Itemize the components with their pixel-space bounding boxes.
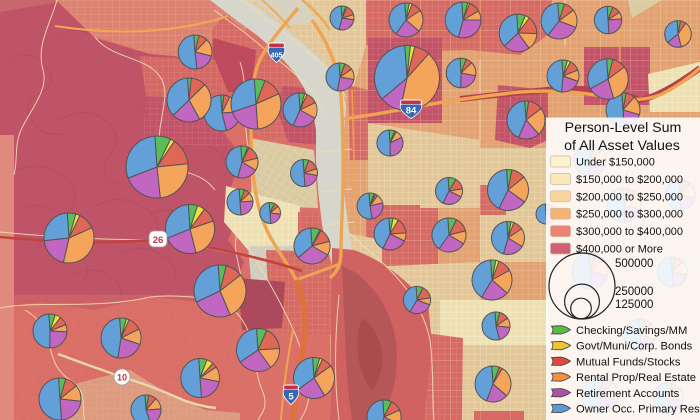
svg-text:Govt/Muni/Corp. Bonds: Govt/Muni/Corp. Bonds	[576, 341, 693, 353]
svg-text:Mutual Funds/Stocks: Mutual Funds/Stocks	[576, 356, 681, 368]
svg-text:Retirement Accounts: Retirement Accounts	[576, 388, 680, 400]
svg-text:Under $150,000: Under $150,000	[576, 157, 655, 169]
svg-text:of All Asset Values: of All Asset Values	[564, 138, 680, 154]
svg-text:Checking/Savings/MM: Checking/Savings/MM	[576, 325, 687, 337]
svg-text:$200,000 to $250,000: $200,000 to $250,000	[576, 191, 683, 203]
svg-text:$250,000 to $300,000: $250,000 to $300,000	[576, 209, 683, 221]
svg-text:$150,000 to $200,000: $150,000 to $200,000	[576, 174, 683, 186]
svg-text:Person-Level Sum: Person-Level Sum	[565, 120, 682, 136]
svg-text:$300,000 to $400,000: $300,000 to $400,000	[576, 226, 683, 238]
svg-text:250000: 250000	[615, 286, 653, 298]
svg-text:125000: 125000	[615, 299, 653, 311]
svg-text:Owner Occ. Primary Res: Owner Occ. Primary Res	[576, 404, 700, 416]
svg-text:500000: 500000	[615, 258, 653, 270]
svg-text:Rental Prop/Real Estate: Rental Prop/Real Estate	[576, 372, 696, 384]
